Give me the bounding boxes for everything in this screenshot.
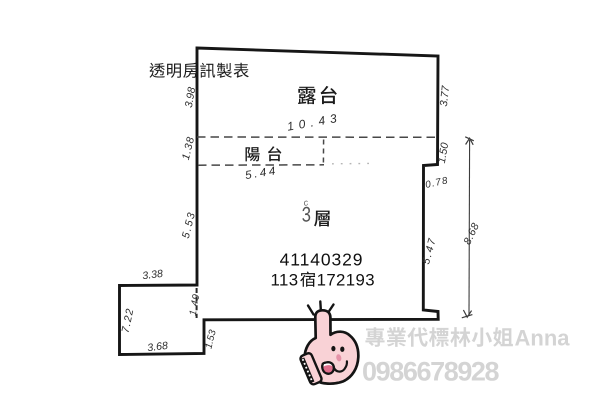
svg-text:3.38: 3.38 [142,268,164,282]
svg-text:172193: 172193 [317,271,375,290]
svg-text:3.68: 3.68 [147,340,169,354]
svg-text:3.77: 3.77 [438,84,452,107]
svg-text:113: 113 [271,271,299,290]
svg-text:41140329: 41140329 [280,250,364,270]
svg-text:0986678928: 0986678928 [362,357,500,387]
svg-text:Anna: Anna [515,326,571,351]
